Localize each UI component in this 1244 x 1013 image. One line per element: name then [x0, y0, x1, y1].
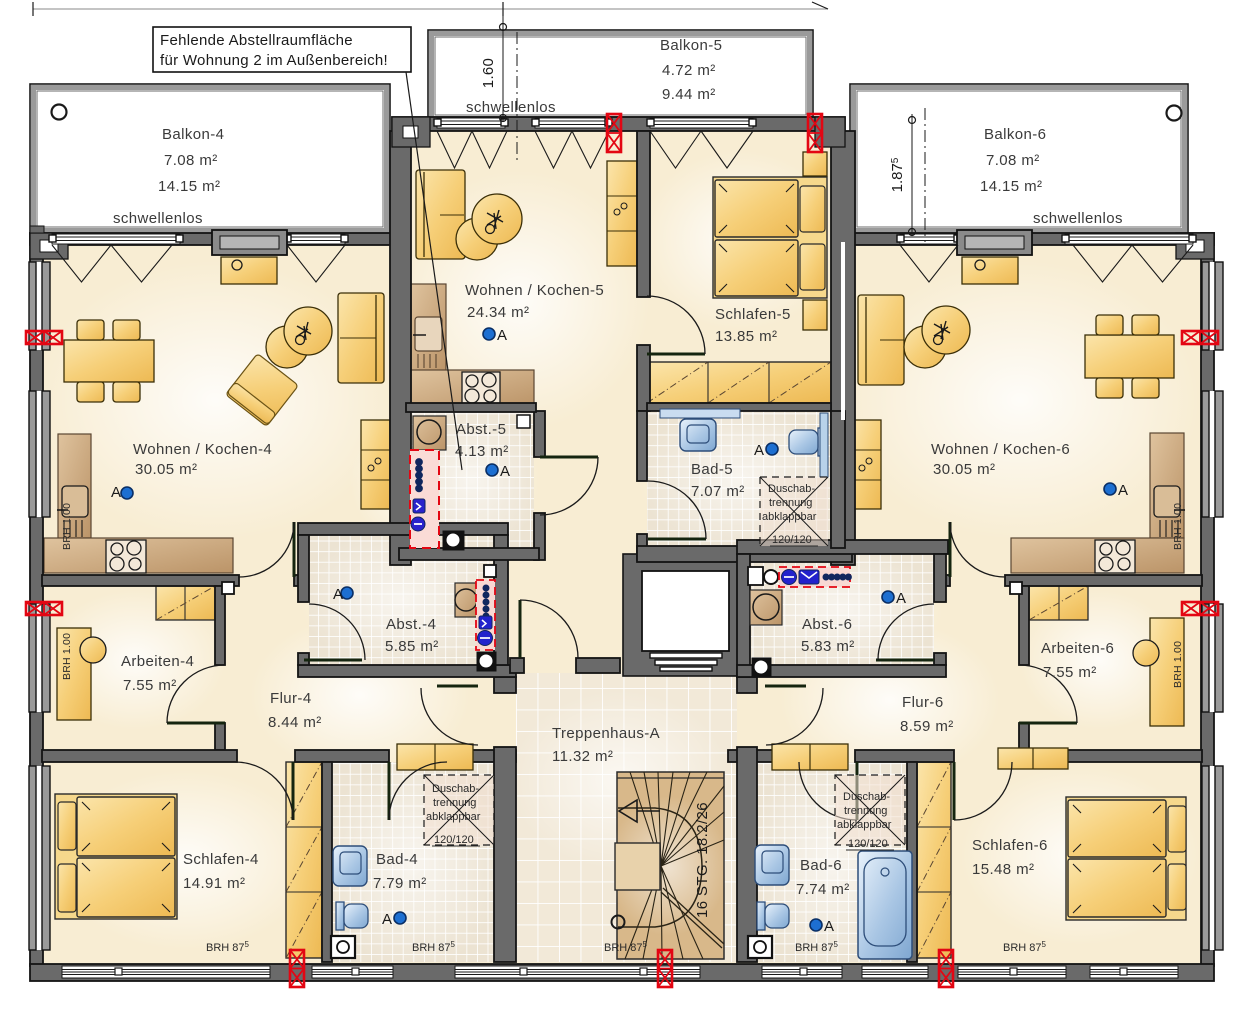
svg-text:14.15 m²: 14.15 m² — [158, 178, 220, 195]
svg-text:4.72 m²: 4.72 m² — [662, 62, 716, 79]
svg-text:trennung: trennung — [769, 497, 812, 509]
svg-text:Bad-4: Bad-4 — [376, 851, 418, 868]
svg-text:7.07 m²: 7.07 m² — [691, 483, 745, 500]
svg-text:Schlafen-4: Schlafen-4 — [183, 851, 259, 868]
svg-text:7.08 m²: 7.08 m² — [986, 152, 1040, 169]
svg-text:schwellenlos: schwellenlos — [113, 210, 203, 227]
svg-text:5.83 m²: 5.83 m² — [801, 638, 855, 655]
svg-text:120/120: 120/120 — [434, 834, 474, 846]
svg-text:11.32 m²: 11.32 m² — [552, 748, 613, 765]
svg-text:trennung: trennung — [844, 805, 887, 817]
svg-text:120/120: 120/120 — [772, 534, 812, 546]
svg-text:schwellenlos: schwellenlos — [1033, 210, 1123, 227]
svg-text:5.85 m²: 5.85 m² — [385, 638, 439, 655]
svg-text:Schlafen-6: Schlafen-6 — [972, 837, 1048, 854]
svg-text:Duschab-: Duschab- — [432, 783, 479, 795]
svg-text:Abst.-5: Abst.-5 — [456, 421, 506, 438]
svg-text:Flur-4: Flur-4 — [270, 690, 312, 707]
svg-text:15.48 m²: 15.48 m² — [972, 861, 1034, 878]
svg-text:A: A — [382, 911, 392, 928]
svg-text:abklappbar: abklappbar — [426, 811, 481, 823]
svg-text:8.44 m²: 8.44 m² — [268, 714, 322, 731]
svg-text:7.55 m²: 7.55 m² — [123, 677, 177, 694]
svg-text:7.79 m²: 7.79 m² — [373, 875, 427, 892]
svg-text:abklappbar: abklappbar — [762, 511, 817, 523]
svg-text:Bad-5: Bad-5 — [691, 461, 733, 478]
svg-text:4.13 m²: 4.13 m² — [455, 443, 509, 460]
svg-text:14.15 m²: 14.15 m² — [980, 178, 1042, 195]
svg-text:A: A — [500, 463, 510, 480]
svg-text:16 STG. 18.2/26: 16 STG. 18.2/26 — [694, 802, 711, 918]
svg-text:120/120: 120/120 — [848, 838, 888, 850]
svg-text:für Wohnung 2 im Außenbereich!: für Wohnung 2 im Außenbereich! — [160, 52, 388, 69]
svg-text:13.85 m²: 13.85 m² — [715, 328, 777, 345]
svg-text:Bad-6: Bad-6 — [800, 857, 842, 874]
svg-text:BRH 875: BRH 875 — [795, 940, 839, 954]
svg-text:30.05 m²: 30.05 m² — [135, 461, 197, 478]
svg-text:BRH 1.00: BRH 1.00 — [61, 503, 73, 550]
svg-text:Treppenhaus-A: Treppenhaus-A — [552, 725, 660, 742]
svg-text:Fehlende Abstellraumfläche: Fehlende Abstellraumfläche — [160, 32, 353, 49]
svg-text:Wohnen / Kochen-5: Wohnen / Kochen-5 — [465, 282, 604, 299]
svg-text:schwellenlos: schwellenlos — [466, 99, 556, 116]
svg-text:BRH 875: BRH 875 — [1003, 940, 1047, 954]
svg-text:Flur-6: Flur-6 — [902, 694, 944, 711]
svg-text:24.34 m²: 24.34 m² — [467, 304, 529, 321]
svg-text:Arbeiten-6: Arbeiten-6 — [1041, 640, 1114, 657]
svg-text:A: A — [754, 442, 764, 459]
svg-text:7.74 m²: 7.74 m² — [796, 881, 850, 898]
svg-text:1.60: 1.60 — [480, 58, 497, 88]
svg-text:Balkon-5: Balkon-5 — [660, 37, 722, 54]
svg-text:A: A — [896, 590, 906, 607]
svg-text:9.44 m²: 9.44 m² — [662, 86, 716, 103]
svg-text:Abst.-4: Abst.-4 — [386, 616, 436, 633]
svg-text:Balkon-4: Balkon-4 — [162, 126, 224, 143]
svg-text:Abst.-6: Abst.-6 — [802, 616, 852, 633]
svg-text:30.05 m²: 30.05 m² — [933, 461, 995, 478]
svg-text:Duschab-: Duschab- — [768, 483, 815, 495]
svg-text:A: A — [333, 586, 343, 603]
svg-text:Wohnen / Kochen-4: Wohnen / Kochen-4 — [133, 441, 272, 458]
svg-text:Duschab-: Duschab- — [843, 791, 890, 803]
svg-text:A: A — [824, 918, 834, 935]
svg-text:trennung: trennung — [433, 797, 476, 809]
svg-text:BRH 875: BRH 875 — [412, 940, 456, 954]
svg-text:7.08 m²: 7.08 m² — [164, 152, 218, 169]
svg-text:14.91 m²: 14.91 m² — [183, 875, 245, 892]
svg-text:BRH 1.00: BRH 1.00 — [1172, 641, 1184, 688]
svg-text:Schlafen-5: Schlafen-5 — [715, 306, 791, 323]
svg-text:BRH 875: BRH 875 — [604, 940, 648, 954]
svg-text:Wohnen / Kochen-6: Wohnen / Kochen-6 — [931, 441, 1070, 458]
svg-text:8.59 m²: 8.59 m² — [900, 718, 954, 735]
svg-text:A: A — [1118, 482, 1128, 499]
svg-text:7.55 m²: 7.55 m² — [1043, 664, 1097, 681]
svg-text:A: A — [497, 327, 507, 344]
svg-text:A: A — [111, 484, 121, 501]
svg-text:BRH 1.00: BRH 1.00 — [1172, 503, 1184, 550]
svg-text:BRH 875: BRH 875 — [206, 940, 250, 954]
svg-text:Balkon-6: Balkon-6 — [984, 126, 1046, 143]
svg-text:BRH 1.00: BRH 1.00 — [61, 633, 73, 680]
svg-text:abklappbar: abklappbar — [837, 819, 892, 831]
svg-text:Arbeiten-4: Arbeiten-4 — [121, 653, 194, 670]
